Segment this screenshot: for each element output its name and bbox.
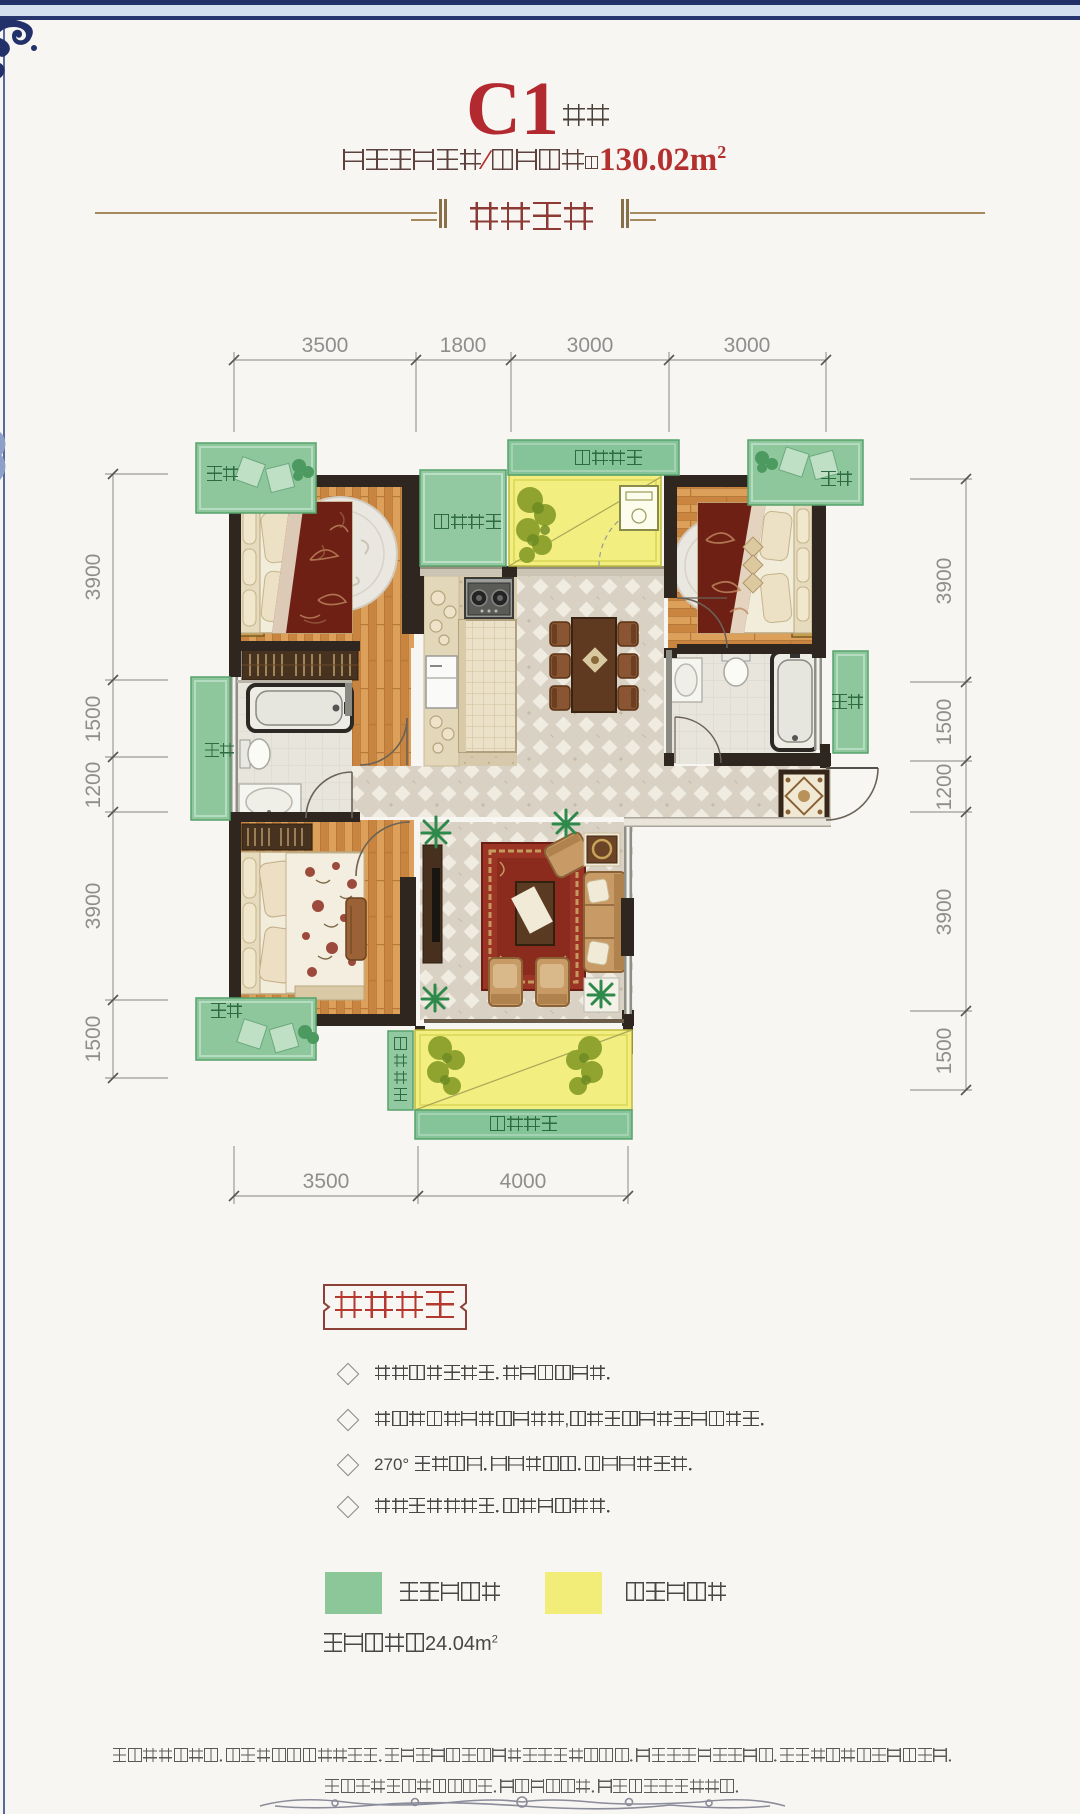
svg-text:1500: 1500 [933,699,956,746]
svg-text:1500: 1500 [933,1028,956,1075]
svg-text:3000: 3000 [567,334,614,357]
svg-text:3900: 3900 [82,554,105,601]
svg-text:1200: 1200 [82,762,105,809]
svg-text:3500: 3500 [303,1170,350,1193]
svg-text:1500: 1500 [82,696,105,743]
svg-text:1200: 1200 [933,764,956,811]
svg-text:3000: 3000 [724,334,771,357]
svg-text:1800: 1800 [440,334,487,357]
svg-text:1500: 1500 [82,1016,105,1063]
svg-text:3500: 3500 [302,334,349,357]
svg-text:4000: 4000 [500,1170,547,1193]
svg-text:3900: 3900 [933,558,956,605]
svg-text:3900: 3900 [82,883,105,930]
svg-text:3900: 3900 [933,889,956,936]
